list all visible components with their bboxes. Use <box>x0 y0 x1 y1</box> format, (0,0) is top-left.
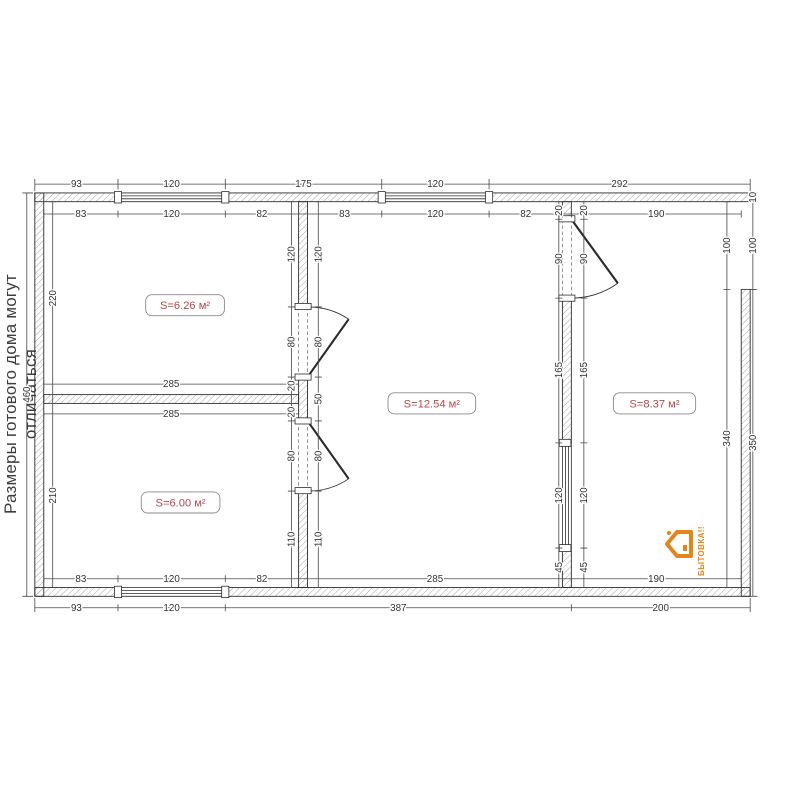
interior-wall-a-segment <box>299 491 308 587</box>
dim-label: 120 <box>163 209 180 220</box>
dim-label: 285 <box>163 379 179 390</box>
door-jamb-plate <box>295 418 311 424</box>
dim-label: 20 <box>287 406 298 417</box>
door-swing-arc <box>308 307 349 319</box>
door-threshold-dashes <box>299 219 572 491</box>
dim-label: 80 <box>287 450 298 461</box>
dim-label: 165 <box>554 362 565 378</box>
dim-label: 120 <box>579 487 590 504</box>
dim-label: 340 <box>722 430 733 447</box>
dim-label: 285 <box>427 574 443 585</box>
room-area-label: S=12.54 м² <box>404 398 461 410</box>
dim-label: 292 <box>611 179 627 190</box>
dim-label: 82 <box>256 574 267 585</box>
room-area-label: S=8.37 м² <box>629 398 679 410</box>
interior-wall-a-segment <box>299 202 308 307</box>
dim-label: 165 <box>579 362 590 378</box>
dim-label: 80 <box>313 336 324 347</box>
door-leaf <box>571 219 617 283</box>
door-swing-arc <box>571 283 617 298</box>
window-end-block <box>485 192 492 203</box>
dim-label: 190 <box>648 574 665 585</box>
dim-chain-bottom-inner <box>44 575 741 582</box>
dim-label: 110 <box>313 531 324 547</box>
dim-label: 50 <box>313 393 324 404</box>
dim-label: 100 <box>722 237 733 254</box>
dim-label: 10 <box>748 191 759 202</box>
dim-label: 45 <box>554 562 565 573</box>
window-end-block <box>114 586 121 597</box>
dim-label: 460 <box>22 386 33 403</box>
dim-chain-top-inner <box>44 210 741 217</box>
dim-label: 285 <box>163 409 179 420</box>
dim-label: 100 <box>748 237 759 254</box>
door-jamb-plate <box>295 303 311 309</box>
window-end-block <box>222 192 229 203</box>
brand-logo: БЫТОВКА!! <box>664 520 714 584</box>
dim-label: 45 <box>579 562 590 573</box>
dim-label: 220 <box>48 290 59 307</box>
door-swing-arc <box>308 479 349 491</box>
dim-label: 200 <box>653 603 670 614</box>
dim-label: 93 <box>71 179 82 190</box>
room-area-label: S=6.00 м² <box>156 498 206 510</box>
dim-label: 190 <box>648 209 665 220</box>
room-area-label: S=6.26 м² <box>160 300 210 312</box>
dim-label: 120 <box>427 209 444 220</box>
dim-label: 83 <box>75 209 86 220</box>
dim-label: 120 <box>313 246 324 263</box>
bottom-wall-segment <box>35 588 118 597</box>
dim-label: 90 <box>554 253 565 264</box>
dim-label: 80 <box>313 450 324 461</box>
floor-plan-drawing: 93 120 175 120 292 83 120 82 83 120 82 1… <box>8 171 777 627</box>
top-wall-segment <box>489 193 750 202</box>
bottom-wall-segment <box>225 588 750 597</box>
interior-wall-b <box>44 395 299 404</box>
dim-label: 83 <box>75 574 86 585</box>
top-wall-segment <box>35 193 118 202</box>
dim-chain-right-inner <box>723 202 755 588</box>
dim-label: 210 <box>48 487 59 504</box>
dim-label: 120 <box>554 487 565 504</box>
dim-label: 350 <box>748 434 759 451</box>
top-wall-segment <box>225 193 381 202</box>
dim-chain-top-outer <box>35 179 750 191</box>
dim-label: 82 <box>256 209 267 220</box>
dim-label: 120 <box>427 179 444 190</box>
left-wall <box>35 193 44 596</box>
dim-label: 175 <box>295 179 311 190</box>
door-jamb-plate <box>295 374 311 380</box>
dim-label: 82 <box>520 209 531 220</box>
dim-label: 20 <box>579 205 590 216</box>
interior-wall-a-segment <box>299 377 308 421</box>
window-end-block <box>114 192 121 203</box>
dim-label: 20 <box>287 380 298 391</box>
window-end-block <box>222 586 229 597</box>
dim-label: 387 <box>390 603 406 614</box>
dim-label: 93 <box>71 603 82 614</box>
dim-chain-left-inner <box>49 202 56 588</box>
dim-label: 120 <box>163 574 180 585</box>
logo-text: БЫТОВКА!! <box>697 522 706 580</box>
dim-label: 120 <box>163 603 180 614</box>
floor-plan-page: Размеры готового дома могут отличаться <box>0 0 800 800</box>
door-jamb-plate <box>295 488 311 494</box>
dim-label: 80 <box>287 336 298 347</box>
dim-label: 120 <box>287 246 298 263</box>
window-end-block <box>378 192 385 203</box>
house-logo-icon <box>664 526 696 562</box>
door-leaf <box>308 421 349 479</box>
dim-label: 83 <box>339 209 350 220</box>
dim-label: 120 <box>163 179 180 190</box>
dim-label: 20 <box>554 205 565 216</box>
dim-label: 90 <box>579 253 590 264</box>
dim-label: 110 <box>287 531 298 547</box>
